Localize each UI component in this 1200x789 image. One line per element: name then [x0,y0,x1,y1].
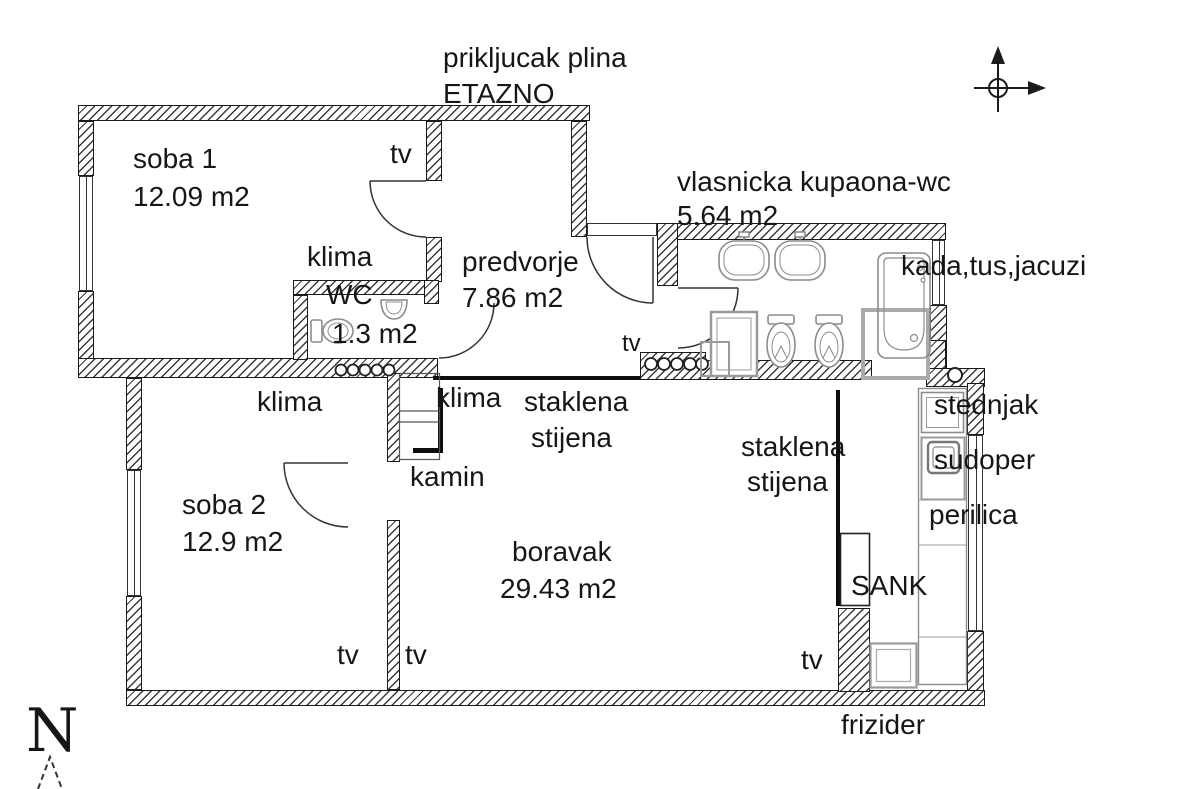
label-predvorje-name: predvorje [462,246,579,277]
wall-soba1-right-upper [426,121,442,181]
label-bath-equipment: kada,tus,jacuzi [901,250,1086,281]
label-boravak-name: boravak [512,536,612,567]
glass-wall-horizontal [433,376,640,380]
label-predvorje-area: 7.86 m2 [462,282,563,313]
label-gas-connection: prikljucak plina [443,42,627,73]
shower-tray-icon [863,310,928,378]
label-heating: ETAZNO [443,78,554,109]
label-boravak-area: 29.43 m2 [500,573,617,604]
wall-soba1-left-lower [78,291,94,360]
klima-label-soba1: klima [307,241,372,272]
wall-kitchen-pillar [838,608,870,692]
label-wc-area: 1.3 m2 [332,318,418,349]
wall-soba2-right-lower [387,520,400,690]
wall-wc-left [293,295,308,360]
fridge-icon [871,644,917,688]
label-washing-machine: perilica [929,499,1018,530]
fireplace-icon [399,374,440,460]
tv-label-soba2: tv [337,639,359,670]
wc-basin-icon [381,300,407,319]
klima-label-soba2: klima [257,386,322,417]
window-soba1 [79,176,93,291]
label-kupaona-name: vlasnicka kupaona-wc [677,166,951,197]
door-arc-bathroom [678,288,738,348]
label-soba2-area: 12.9 m2 [182,526,283,557]
wall-soba1-right-mid [426,237,442,282]
label-bar: SANK [851,570,927,601]
label-kamin: kamin [410,461,485,492]
wall-bath-left-pillar [657,223,678,286]
tv-label-kupaona: tv [622,331,641,358]
entrance-threshold [587,223,657,236]
label-north: N [26,698,79,765]
glass-wall-vertical [836,390,840,606]
door-arc-soba2 [284,463,348,527]
label-soba1-area: 12.09 m2 [133,181,250,212]
tv-label-boravak-right: tv [801,644,823,675]
wall-soba1-left-upper [78,121,94,176]
door-arc-entrance [587,237,653,303]
wall-middle-band [78,358,438,378]
label-glass-wall-right-1: staklena [741,431,845,462]
window-soba2 [127,470,141,596]
tv-label-boravak-left: tv [405,639,427,670]
wall-predvorje-right [571,121,587,237]
label-kitchen-sink: sudoper [934,444,1035,475]
label-kupaona-area: 5.64 m2 [677,200,778,231]
label-glass-wall-center-1: staklena [524,386,628,417]
wall-wc-right [424,280,439,304]
label-soba2-name: soba 2 [182,489,266,520]
wall-soba2-left-lower [126,596,142,690]
floor-plan: prikljucak plina ETAZNO soba 1 12.09 m2 … [0,0,1200,789]
label-stove: stednjak [934,389,1038,420]
klima-label-boravak: klima [436,382,501,413]
fireplace-flue-foot [413,448,443,453]
label-glass-wall-center-2: stijena [531,422,612,453]
tv-label-soba1: tv [390,138,412,169]
label-soba1-name: soba 1 [133,143,217,174]
label-fridge: frizider [841,709,925,740]
wall-bottom [126,690,985,706]
wall-bath-bottom [700,360,872,380]
door-arc-soba1 [370,181,426,237]
wall-soba2-right-upper [387,373,400,462]
label-glass-wall-right-2: stijena [747,466,828,497]
kitchen-counter [918,389,967,685]
label-wc-name: WC [326,279,373,310]
compass-icon [974,46,1046,112]
wall-bath-bottom-left [640,352,706,380]
wall-soba2-left-upper [126,378,142,470]
